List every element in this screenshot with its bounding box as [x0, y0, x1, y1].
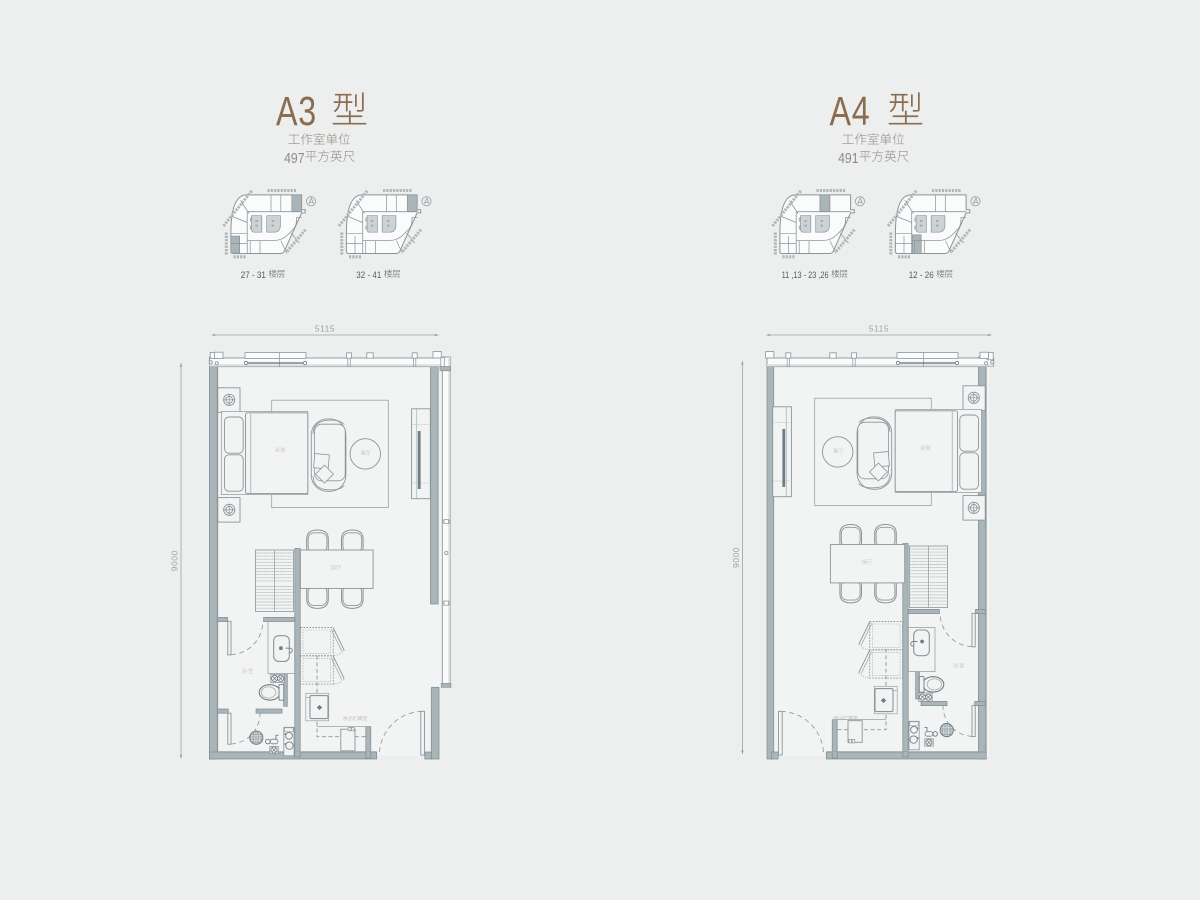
- svg-text:5115: 5115: [315, 324, 335, 334]
- svg-text:9000: 9000: [170, 550, 180, 571]
- svg-text:5115: 5115: [869, 324, 889, 334]
- svg-text:491: 491: [838, 150, 858, 167]
- svg-text:A3: A3: [276, 88, 317, 134]
- svg-text:27 - 31: 27 - 31: [241, 269, 266, 280]
- svg-text:497: 497: [284, 150, 304, 167]
- svg-text:32 - 41: 32 - 41: [356, 269, 381, 280]
- svg-text:A4: A4: [830, 88, 871, 134]
- svg-text:11 ,13 - 23 ,26: 11 ,13 - 23 ,26: [782, 269, 829, 280]
- svg-text:12 - 26: 12 - 26: [909, 269, 934, 280]
- svg-text:9000: 9000: [731, 547, 741, 568]
